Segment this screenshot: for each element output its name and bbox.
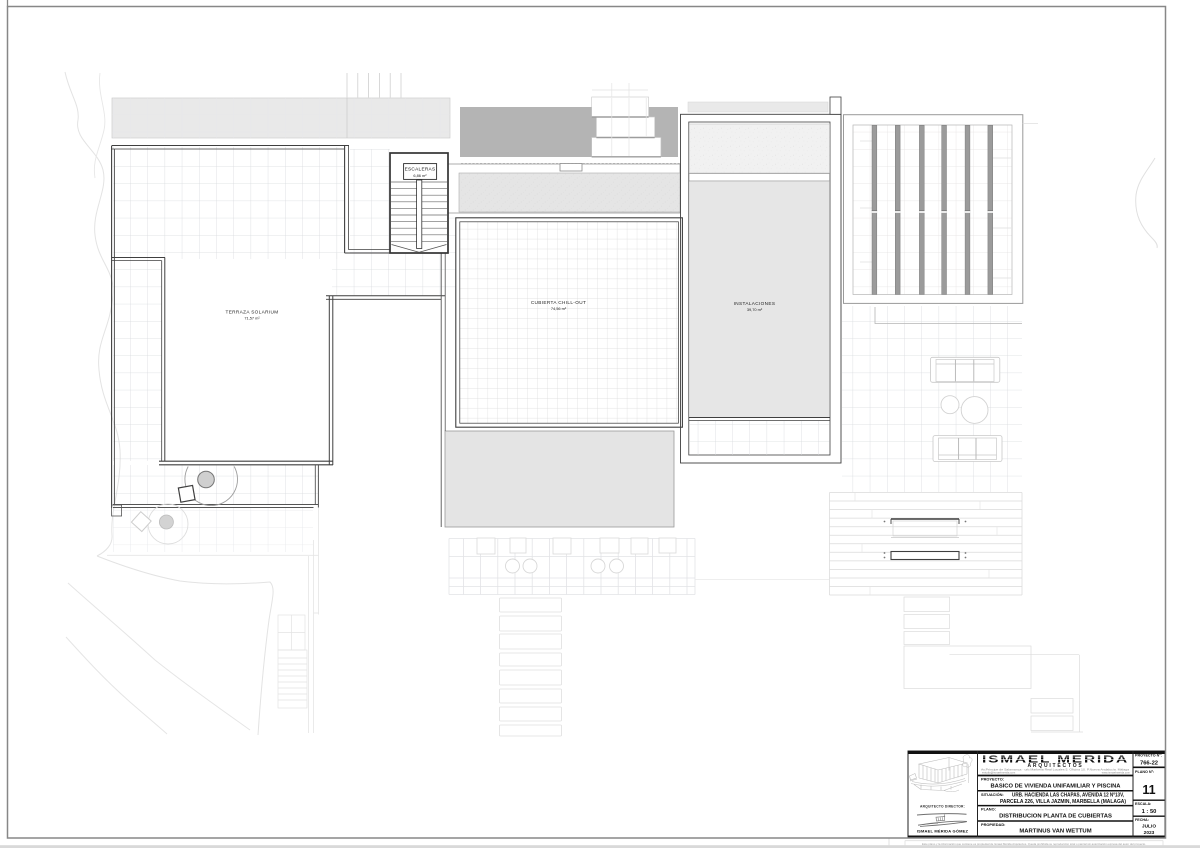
svg-text:URB. HACIENDA LAS CHAPAS, AVEN: URB. HACIENDA LAS CHAPAS, AVENIDA 12 Nº1… [1012,792,1124,798]
svg-text:www.ismaelmerida.com: www.ismaelmerida.com [1102,771,1131,775]
svg-text:71,57 m²: 71,57 m² [244,316,260,321]
svg-text:SITUACIÓN:: SITUACIÓN: [981,792,1004,797]
svg-text:MARTINUS VAN WETTUM: MARTINUS VAN WETTUM [1019,829,1091,835]
svg-text:PROPIEDAD:: PROPIEDAD: [981,822,1005,827]
svg-text:JULIO: JULIO [1142,824,1156,830]
svg-text:1 : 50: 1 : 50 [1142,809,1157,815]
svg-text:2023: 2023 [1144,830,1155,836]
svg-text:PARCELA 226, VILLA JAZMIN, MAR: PARCELA 226, VILLA JAZMIN, MARBELLA (MAL… [1000,799,1126,805]
svg-text:74,56 m²: 74,56 m² [551,306,567,311]
svg-text:estudio@ismaelmerida.com: estudio@ismaelmerida.com [982,771,1016,775]
svg-text:11: 11 [1142,783,1155,797]
svg-text:766-22: 766-22 [1140,761,1158,767]
svg-text:PROYECTO Nº:: PROYECTO Nº: [1135,754,1162,758]
svg-text:BASICO DE VIVIENDA UNIFAMILIAR: BASICO DE VIVIENDA UNIFAMILIAR Y PISCINA [991,784,1121,790]
svg-text:ISMAEL MÉRIDA GÓMEZ: ISMAEL MÉRIDA GÓMEZ [917,829,969,834]
svg-text:6,86 m²: 6,86 m² [413,173,427,178]
svg-text:DISTRIBUCION PLANTA DE CUBIERT: DISTRIBUCION PLANTA DE CUBIERTAS [999,813,1112,819]
svg-text:PLANO Nº:: PLANO Nº: [1135,770,1154,774]
svg-text:PLANO:: PLANO: [981,806,996,811]
svg-text:INSTALACIONES: INSTALACIONES [734,301,776,306]
svg-text:ESCALA:: ESCALA: [1135,802,1151,806]
svg-text:PROYECTO:: PROYECTO: [981,776,1004,781]
svg-text:CUBIERTA CHILL-OUT: CUBIERTA CHILL-OUT [531,300,586,305]
svg-text:TERRAZA SOLARIUM: TERRAZA SOLARIUM [225,310,278,315]
svg-text:39,70 m²: 39,70 m² [747,307,763,312]
svg-text:FECHA:: FECHA: [1135,818,1149,822]
svg-text:ARQUITECTO DIRECTOR:: ARQUITECTO DIRECTOR: [920,805,965,809]
svg-text:ESCALERAS: ESCALERAS [405,167,436,172]
